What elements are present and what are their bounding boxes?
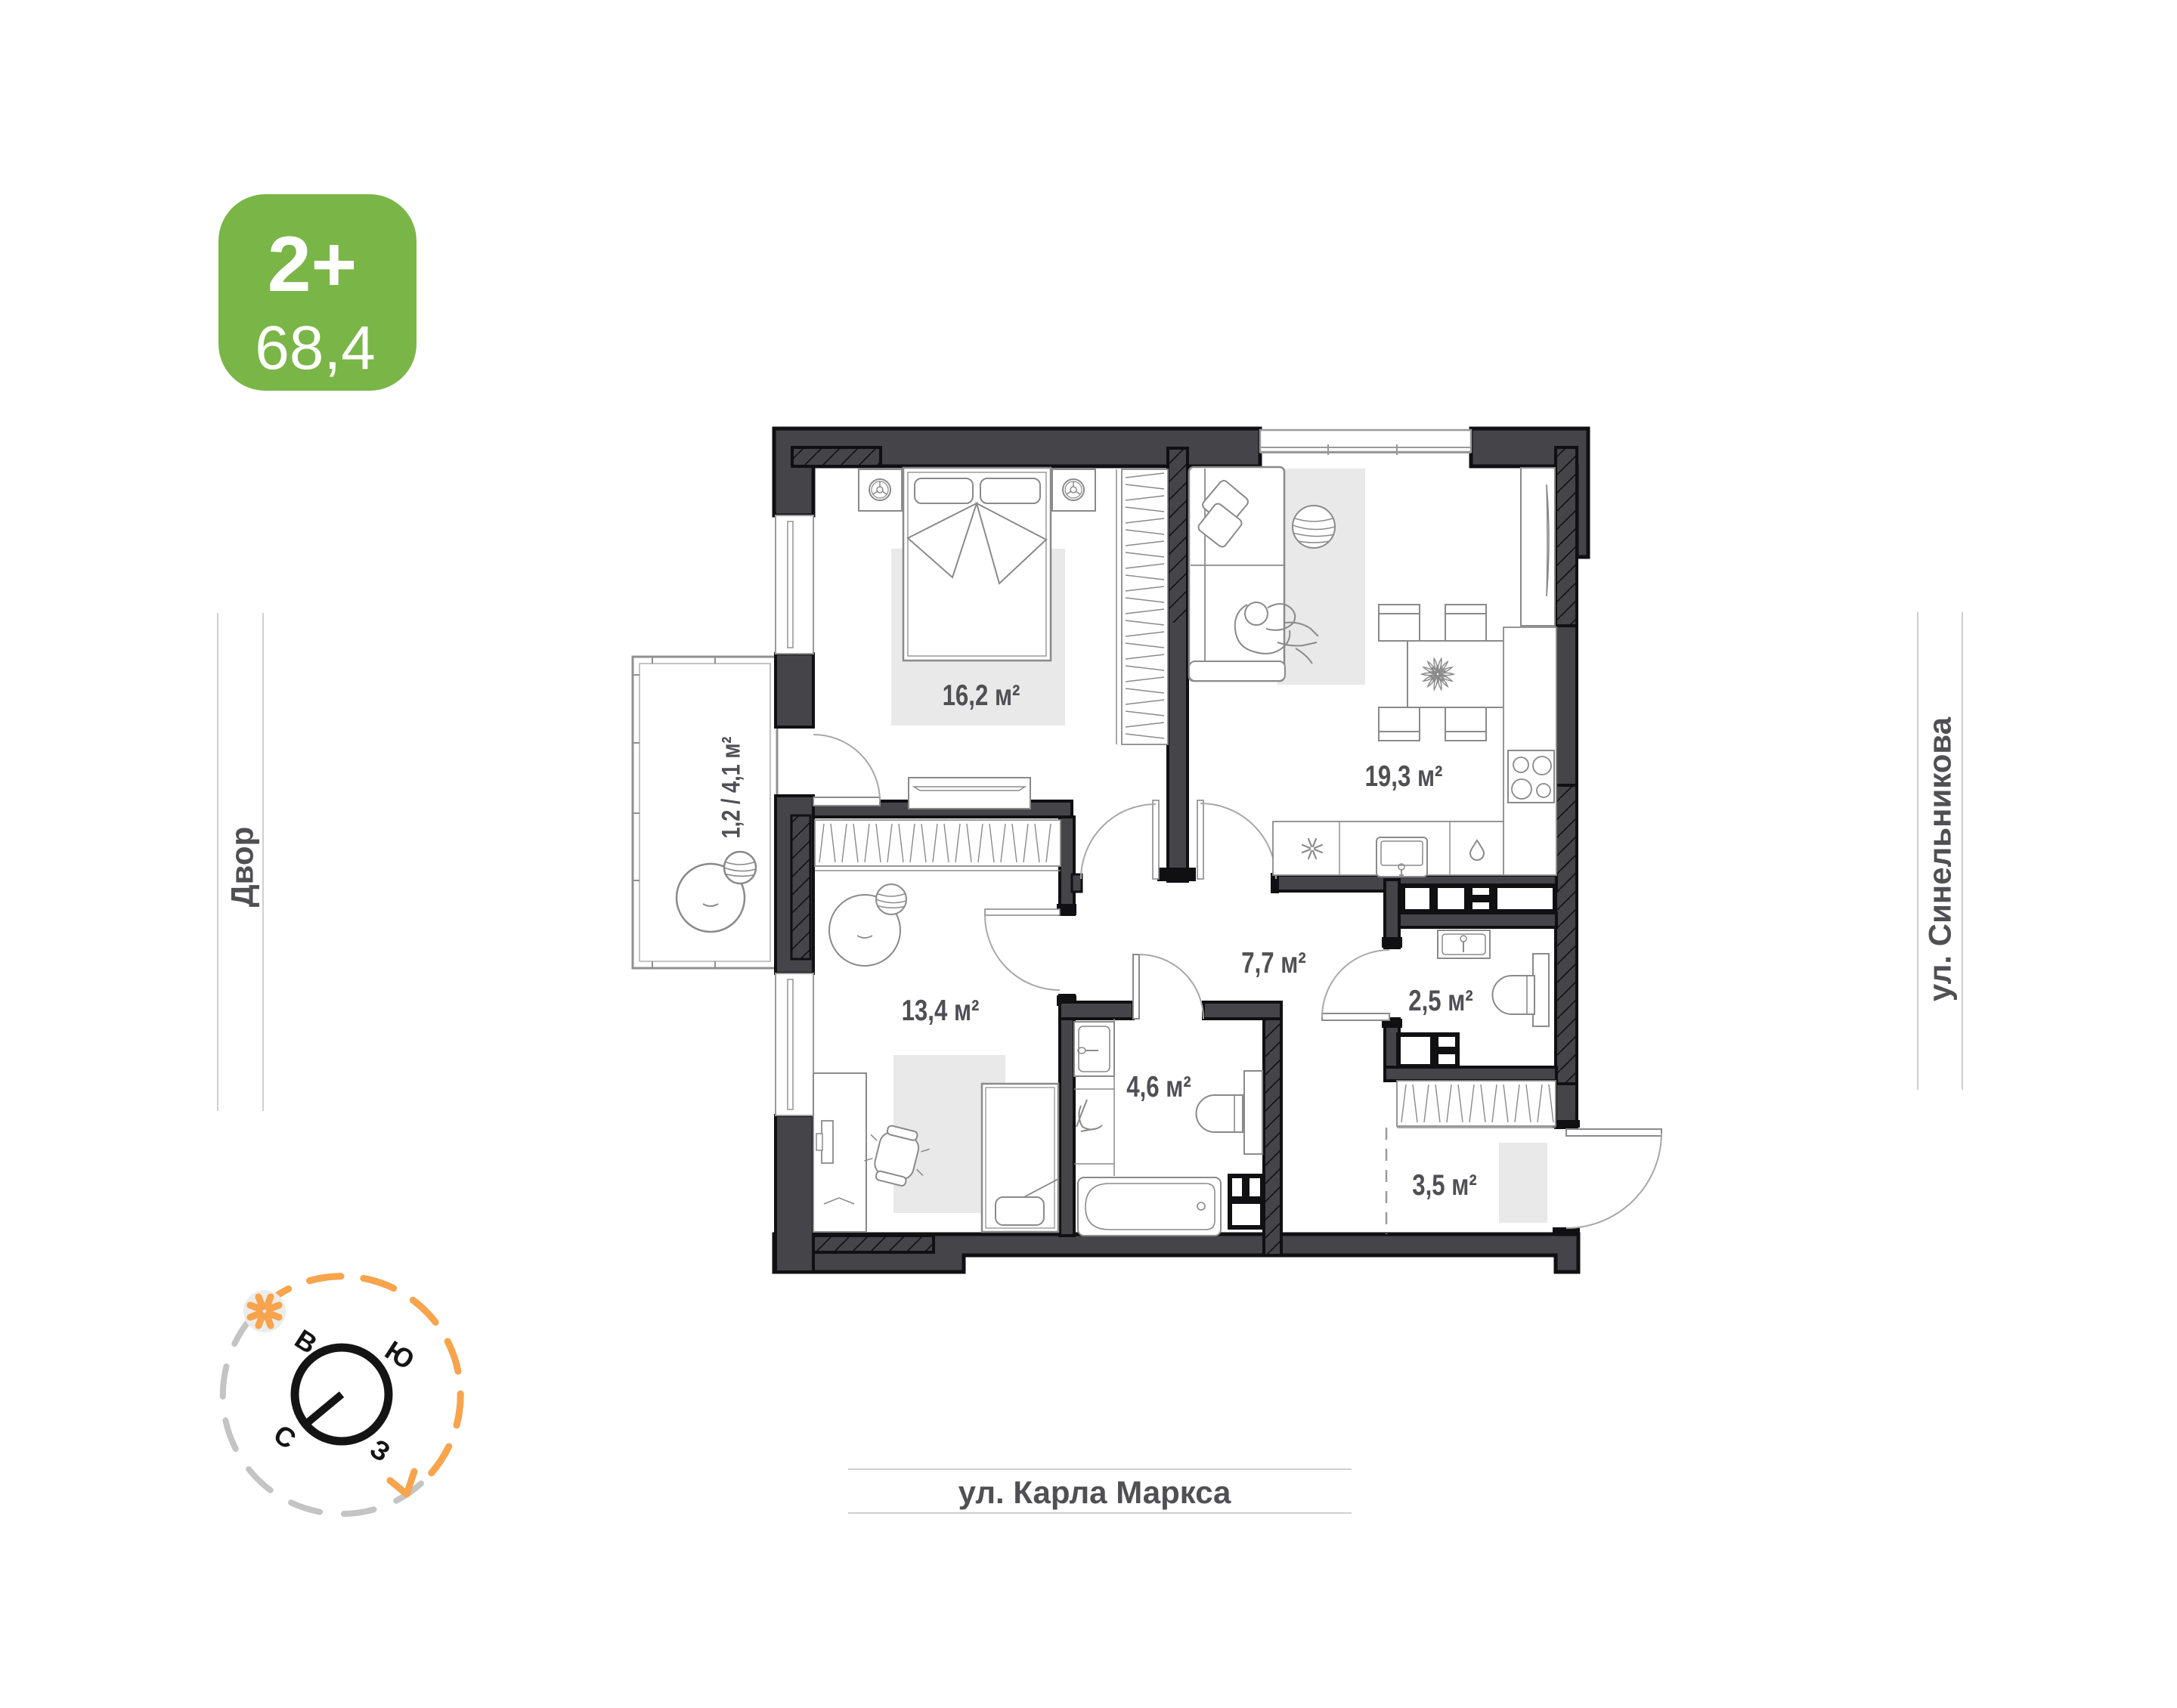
svg-text:1,2 / 4,1 м²: 1,2 / 4,1 м² xyxy=(717,737,746,839)
svg-text:19,3 м²: 19,3 м² xyxy=(1365,760,1443,793)
svg-text:68,4: 68,4 xyxy=(255,314,376,382)
svg-text:4,6 м²: 4,6 м² xyxy=(1126,1071,1191,1103)
svg-text:3,5 м²: 3,5 м² xyxy=(1412,1169,1477,1202)
svg-text:2,5 м²: 2,5 м² xyxy=(1408,985,1473,1017)
svg-text:ул. Карла Маркса: ул. Карла Маркса xyxy=(958,1474,1231,1510)
svg-text:2+: 2+ xyxy=(268,221,358,308)
svg-text:Двор: Двор xyxy=(225,827,260,908)
svg-text:13,4 м²: 13,4 м² xyxy=(902,995,980,1027)
svg-text:ул. Синельникова: ул. Синельникова xyxy=(1922,716,1958,1001)
svg-text:7,7 м²: 7,7 м² xyxy=(1241,947,1306,979)
svg-text:16,2 м²: 16,2 м² xyxy=(943,679,1020,712)
